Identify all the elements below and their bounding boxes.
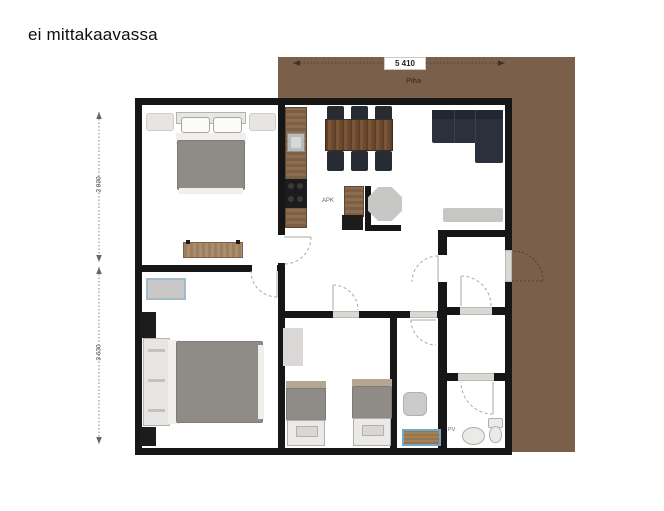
floor-plan-canvas: ei mittakaavassa Piha <box>0 0 664 511</box>
bedroom2-door-arc <box>251 271 277 297</box>
door-swing-arcs <box>251 237 493 414</box>
dimension-left <box>96 112 102 444</box>
bedroom1-door-arc <box>284 237 311 264</box>
annotation-overlay <box>0 0 664 511</box>
kids-room-door-arc <box>333 285 358 310</box>
dimension-label-top: 5 410 <box>384 57 426 70</box>
dimension-label-left-upper: 2 930 <box>96 165 103 205</box>
dimension-label-left-lower: 3 630 <box>96 333 103 373</box>
shower-door-arc <box>411 320 436 345</box>
bathroom-door-arc <box>461 382 493 414</box>
patio-door-arc <box>512 251 543 281</box>
wc-hall-door-arc <box>412 256 438 282</box>
door-leaves <box>277 237 493 414</box>
patio-door <box>512 251 543 281</box>
wc-upper-door-arc <box>461 276 491 306</box>
